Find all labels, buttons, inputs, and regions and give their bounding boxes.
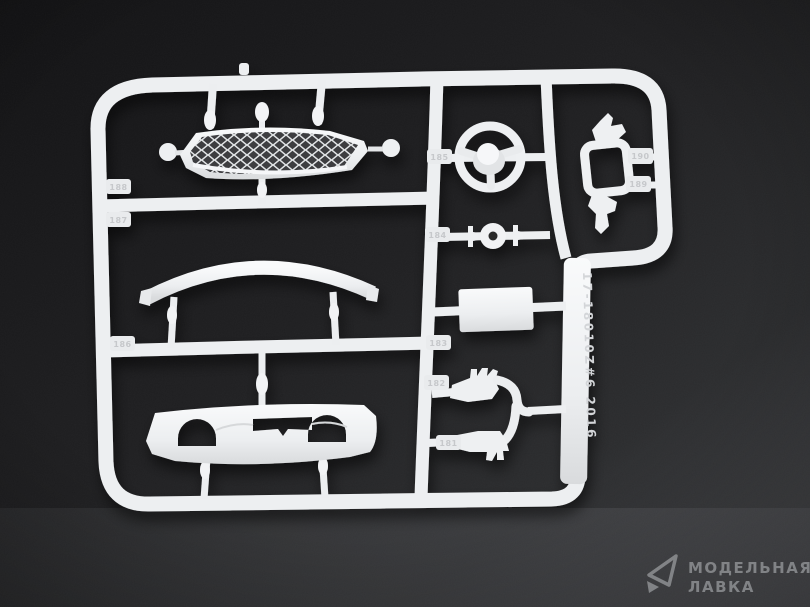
tab-number: 188 — [109, 183, 127, 192]
tab-number: 184 — [428, 231, 446, 240]
part-tab: 188 — [106, 179, 131, 194]
part-tab: 190 — [628, 148, 653, 164]
part-tab: 182 — [424, 375, 449, 390]
spoiler-post-knob — [167, 306, 177, 324]
sprue-photograph: 17-18010Z#6 2016 — [0, 0, 810, 607]
part-tab: 189 — [626, 176, 651, 192]
side-clip-right — [382, 139, 400, 157]
frame-nub — [239, 63, 249, 75]
watermark-line2: ЛАВКА — [688, 578, 755, 596]
tab-number: 185 — [430, 153, 448, 162]
gate-blob — [200, 461, 210, 479]
wheel-hub-cap — [477, 143, 499, 165]
watermark-line1: МОДЕЛЬНАЯ — [688, 559, 810, 577]
rail-horizontal-middle — [104, 343, 431, 351]
tab-number: 189 — [629, 180, 647, 189]
gate-blob — [255, 102, 269, 122]
tab-number: 182 — [427, 379, 445, 388]
part-tab: 181 — [436, 435, 461, 450]
rail-horizontal-upper — [100, 198, 436, 206]
joint-hole — [489, 232, 498, 241]
gate-blob — [204, 110, 216, 130]
gate-blob — [312, 106, 324, 126]
tab-number: 181 — [439, 439, 457, 448]
side-clip-left — [159, 143, 177, 161]
gate-blob — [256, 373, 268, 395]
spoiler-post-knob — [329, 303, 339, 321]
part-tab: 186 — [110, 336, 135, 351]
part-tab: 185 — [427, 149, 452, 164]
tab-number: 187 — [109, 216, 127, 225]
part-tab: 183 — [426, 335, 451, 350]
part-rectangular-box — [458, 287, 533, 333]
part-tab: 187 — [106, 212, 131, 227]
tab-number: 183 — [429, 339, 447, 348]
tab-number: 190 — [631, 152, 649, 161]
photo-stage: 17-18010Z#6 2016 — [0, 0, 810, 607]
tab-number: 186 — [113, 340, 131, 349]
gate-blob — [257, 182, 267, 198]
link-exhaust-duct — [528, 409, 566, 411]
part-tab: 184 — [425, 227, 450, 242]
